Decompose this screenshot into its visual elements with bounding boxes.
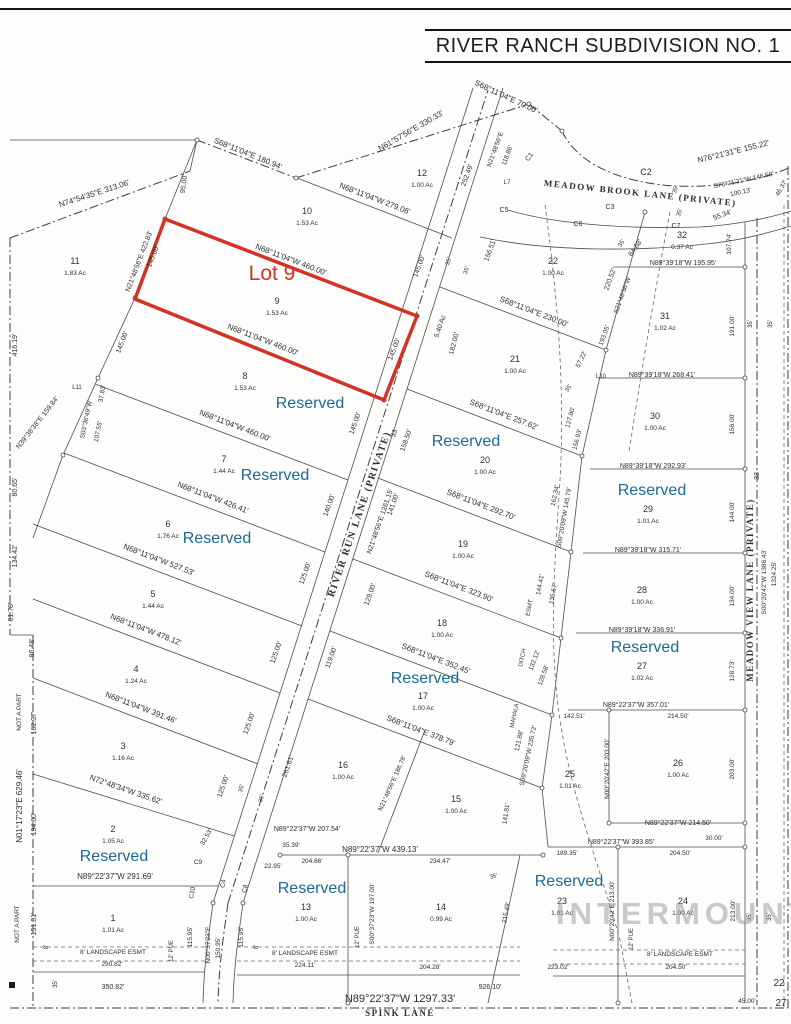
vertex-dot xyxy=(211,901,215,905)
map-label: NOT A PART xyxy=(16,693,23,731)
map-label: 35' xyxy=(676,208,684,217)
map-line xyxy=(378,478,571,552)
map-label: 416.19' xyxy=(12,334,19,357)
map-label: 145.00' xyxy=(412,255,427,279)
monument-marker xyxy=(9,982,15,988)
map-label: N00°20'42"E 203.00' xyxy=(603,739,611,799)
map-label: 1.00 Ac xyxy=(412,705,434,712)
vertex-dot xyxy=(743,821,747,825)
vertex-dot xyxy=(540,786,544,790)
map-label: 35' xyxy=(747,913,753,921)
map-label: 35' xyxy=(463,266,471,275)
vertex-dot xyxy=(743,376,747,380)
map-label: 107.74' xyxy=(726,233,733,254)
vertex-dot xyxy=(743,265,747,269)
map-label: Reserved xyxy=(80,848,148,865)
map-label: 204.66' xyxy=(301,858,322,865)
map-label: N39°38'38"E 159.84' xyxy=(14,395,60,451)
map-label: 1.05 Ac xyxy=(102,838,124,845)
vertex-dot xyxy=(743,708,747,712)
map-label: C6 xyxy=(574,221,583,228)
map-label: C5 xyxy=(500,207,509,214)
map-label: S68°11'04"E 378.79' xyxy=(385,713,456,748)
map-label: C4 xyxy=(219,879,227,889)
map-label: 15 xyxy=(451,794,461,804)
map-label: 1.83 Ac xyxy=(64,270,86,277)
map-label: 1.00 Ac xyxy=(332,774,354,781)
map-label: 35' xyxy=(258,794,266,803)
map-label: 6 xyxy=(165,519,170,529)
map-label: 158.50' xyxy=(400,429,414,453)
map-label: 189.35' xyxy=(556,850,577,857)
map-label: Lot 9 xyxy=(249,262,296,285)
map-label: 10 xyxy=(302,206,312,216)
vertex-dot xyxy=(580,454,584,458)
map-label: 144.41' xyxy=(535,574,546,596)
map-label: C2 xyxy=(640,167,652,177)
map-label: 1.02 Ac xyxy=(654,325,676,332)
map-label: Reserved xyxy=(618,482,686,499)
map-label: 213.00' xyxy=(730,900,737,921)
map-label: 1.00 Ac xyxy=(542,270,564,277)
map-label: 13 xyxy=(301,902,311,912)
map-label: ESMT xyxy=(526,599,535,617)
map-line xyxy=(542,715,552,788)
map-label: 145.00' xyxy=(146,245,161,269)
vertex-dot xyxy=(294,176,298,180)
map-label: 8 xyxy=(242,371,247,381)
vertex-dot xyxy=(61,453,65,457)
map-label: 25 xyxy=(565,769,575,779)
map-label: 1.01 Ac xyxy=(102,927,124,934)
map-label: 33 xyxy=(754,472,761,480)
map-label: 1.00 Ac xyxy=(431,632,453,639)
map-label: 27 xyxy=(775,998,787,1009)
map-label: 140.00' xyxy=(323,494,337,518)
map-label: 156.00' xyxy=(729,413,736,434)
map-label: C10 xyxy=(188,886,197,899)
map-label: N89°39'18"W 315.71' xyxy=(615,546,681,554)
map-label: 35' xyxy=(489,873,498,881)
vertex-dot xyxy=(550,713,554,717)
map-label: 1.24 Ac xyxy=(125,678,147,685)
map-label: 30 xyxy=(650,411,660,421)
map-label: 19 xyxy=(458,539,468,549)
map-path xyxy=(233,903,243,1003)
map-label: 17 xyxy=(418,691,428,701)
map-label: S76°21'31"W 146.50' xyxy=(713,170,775,191)
map-label: 21 xyxy=(510,354,520,364)
map-label: 3 xyxy=(120,741,125,751)
map-label: S68°11'04"E 180.94' xyxy=(213,136,284,172)
map-label: 1.00 Ac xyxy=(504,368,526,375)
map-label: MEADOW VIEW LANE (PRIVATE) xyxy=(745,498,755,681)
map-line xyxy=(353,559,561,638)
map-line xyxy=(582,350,606,456)
map-label: 20 xyxy=(480,455,490,465)
vertex-dot xyxy=(569,550,573,554)
map-label: 1.02 Ac xyxy=(631,675,653,682)
map-line xyxy=(542,788,548,847)
map-line xyxy=(33,599,280,693)
map-label: 95.00' xyxy=(180,174,190,194)
map-label: 8' xyxy=(254,945,260,949)
map-label: 35' xyxy=(618,239,627,249)
map-label: 32 xyxy=(677,230,687,240)
map-label: 29 xyxy=(643,504,653,514)
map-label: 1.01 Ac xyxy=(637,518,659,525)
map-label: 151.01' xyxy=(31,913,38,936)
map-label: 1.44 Ac xyxy=(142,603,164,610)
map-label: 12 xyxy=(417,168,427,178)
map-label: 145.00' xyxy=(115,331,130,355)
map-label: 8' xyxy=(44,945,50,949)
map-label: 1.00 Ac xyxy=(672,910,694,917)
map-label: N89°39'18"W 292.93' xyxy=(620,462,686,470)
map-label: 223.02' xyxy=(547,964,568,971)
vertex-dot xyxy=(643,210,647,214)
map-label: 1.00 Ac xyxy=(644,425,666,432)
map-label: 214.50' xyxy=(667,713,688,720)
map-label: 9 xyxy=(274,296,279,306)
map-label: 204.28' xyxy=(419,964,440,971)
map-label: S68°11'04"E 230.00' xyxy=(498,294,569,329)
map-label: 1.00 Ac xyxy=(295,916,317,923)
map-label: 35' xyxy=(767,913,773,921)
map-label: 115.95' xyxy=(238,927,245,948)
map-label: N61°57'56"E 330.33' xyxy=(377,108,446,153)
map-line xyxy=(561,552,571,638)
map-label: 23 xyxy=(557,896,567,906)
map-label: 128.73' xyxy=(729,660,736,681)
map-label: 290.82' xyxy=(101,961,122,968)
map-label: 162.34' xyxy=(550,485,561,507)
map-label: DITCH xyxy=(518,648,528,667)
vertex-dot xyxy=(560,129,564,133)
map-label: 125.00' xyxy=(217,775,231,799)
map-label: 125.00' xyxy=(243,712,257,736)
map-label: S03°36'49"W xyxy=(78,399,94,439)
map-label: 129.00' xyxy=(364,583,378,607)
map-label: 35' xyxy=(565,384,574,394)
map-label: 0.99 Ac xyxy=(430,916,452,923)
map-label: 162.37' xyxy=(31,712,38,735)
map-label: 12' PUE xyxy=(629,928,635,950)
map-label: 234.47' xyxy=(429,858,450,865)
map-label: 1.76 Ac xyxy=(157,533,179,540)
map-label: 1 xyxy=(110,913,115,923)
map-label: 156.93' xyxy=(571,429,583,451)
map-label: 27 xyxy=(637,661,647,671)
map-label: 193.05' xyxy=(598,324,612,346)
map-label: 26 xyxy=(673,758,683,768)
map-label: 86.48' xyxy=(29,639,36,658)
vertex-dot xyxy=(96,376,100,380)
map-label: 33 xyxy=(390,429,399,439)
map-label: 8' LANDSCAPE ESMT xyxy=(80,949,146,956)
map-label: 141.81' xyxy=(502,803,512,825)
map-label: N68°11'04"W 391.46' xyxy=(104,690,178,726)
map-label: S68°11'04"E 323.90' xyxy=(423,569,494,604)
map-label: 1.53 Ac xyxy=(266,310,288,317)
map-label: 1.00 Ac xyxy=(667,772,689,779)
map-label: 12' PUE xyxy=(355,926,361,948)
map-label: 127.80' xyxy=(564,407,576,429)
map-label: N89°22'37"W 214.50' xyxy=(645,819,711,827)
map-path xyxy=(508,210,791,228)
map-label: 18 xyxy=(437,618,447,628)
map-label: S68°11'04"E 292.70' xyxy=(445,487,516,522)
map-label: 5.40 Ac xyxy=(433,314,447,339)
map-label: 55.34' xyxy=(712,209,732,222)
map-label: 191.00' xyxy=(729,315,736,336)
vertex-dot xyxy=(604,348,608,352)
map-label: 1.01 Ac xyxy=(551,910,573,917)
vertex-dot xyxy=(743,467,747,471)
map-label: C1 xyxy=(524,151,535,162)
map-label: 35' xyxy=(53,980,59,988)
map-label: 100.13' xyxy=(730,187,752,198)
map-label: 150.95' xyxy=(215,937,222,958)
map-label: 1.00 Ac xyxy=(445,808,467,815)
map-label: 350.82' xyxy=(102,984,125,991)
page-title: RIVER RANCH SUBDIVISION NO. 1 xyxy=(425,30,791,62)
map-label: 134.00' xyxy=(729,585,736,606)
map-label: N89°39'18"W 268.41' xyxy=(629,371,695,379)
map-label: N01°17'23"E 629.46' xyxy=(15,769,24,843)
map-label: 121.88' xyxy=(514,730,525,752)
map-label: 128.58' xyxy=(537,664,551,686)
map-line xyxy=(33,678,258,764)
map-label: N89°22'37"W 393.85' xyxy=(588,838,654,846)
map-label: C7 xyxy=(672,223,681,230)
map-label: 134.42' xyxy=(12,545,19,568)
vertex-dot xyxy=(541,853,545,857)
map-label: 35' xyxy=(768,320,774,328)
map-label: Reserved xyxy=(391,670,459,687)
map-label: 261.61' xyxy=(282,755,296,779)
vertex-dot xyxy=(607,821,611,825)
map-label: Reserved xyxy=(241,467,309,484)
map-label: S68°11'04"E 257.62' xyxy=(468,397,539,432)
map-label: C3 xyxy=(606,204,615,211)
vertex-dot xyxy=(241,901,245,905)
map-label: 1.16 Ac xyxy=(112,755,134,762)
map-label: 125.00' xyxy=(270,641,284,665)
map-label: 142.51' xyxy=(563,713,584,720)
map-label: Reserved xyxy=(276,395,344,412)
map-label: 144.00' xyxy=(729,501,736,522)
map-label: 0.37 Ac xyxy=(671,244,693,251)
map-label: 1.00 Ac xyxy=(452,553,474,560)
plat-map: S68°11'04"E 180.94'N61°57'56"E 330.33'S6… xyxy=(0,0,791,1024)
map-label: 1.01 Ac xyxy=(559,783,581,790)
map-label: 132.12' xyxy=(528,649,542,671)
map-label: 32.53' xyxy=(199,828,214,847)
map-label: SPINK LANE xyxy=(365,1008,435,1018)
map-label: 1.00 Ac xyxy=(474,469,496,476)
map-label: 125.00' xyxy=(299,562,313,586)
map-label: 31 xyxy=(660,311,670,321)
plat-sheet: S68°11'04"E 180.94'N61°57'56"E 330.33'S6… xyxy=(0,0,791,1024)
map-label: 57.22' xyxy=(575,350,589,369)
map-label: N89°39'18"W 336.91' xyxy=(609,626,675,634)
map-label: 22 xyxy=(548,256,558,266)
map-label: 203.00' xyxy=(729,758,736,779)
map-label: 7 xyxy=(221,454,226,464)
map-label: N68°11'04"W 460.00' xyxy=(198,408,272,444)
map-label: 1.00 Ac xyxy=(411,182,433,189)
map-label: 194.60' xyxy=(31,813,38,836)
map-label: L10 xyxy=(596,374,607,380)
map-label: L7 xyxy=(504,180,511,186)
map-label: 220.52' xyxy=(603,268,617,292)
map-label: 8' LANDSCAPE ESMT xyxy=(272,950,338,957)
map-label: 11 xyxy=(70,256,79,266)
map-label: 5 xyxy=(150,589,155,599)
map-label: NOT A PART xyxy=(14,905,21,943)
map-label: 204.50' xyxy=(669,850,690,857)
map-label: 24 xyxy=(678,896,688,906)
map-line xyxy=(440,287,606,350)
map-label: 1.44 Ac xyxy=(213,468,235,475)
map-label: 28 xyxy=(637,585,647,595)
map-label: N89°39'18"W 195.95' xyxy=(650,259,716,267)
map-label: 926.10' xyxy=(479,984,502,991)
map-label: 156.51' xyxy=(483,239,497,263)
map-label: 119.00' xyxy=(325,646,339,669)
map-label: 61.78' xyxy=(8,603,15,622)
map-label: S00°37'23"W 197.00' xyxy=(368,883,376,944)
map-label: S21°48'56"W xyxy=(612,275,633,315)
map-label: 35' xyxy=(445,257,453,266)
map-label: 37.83' xyxy=(98,385,108,403)
map-label: N68°11'04"W 426.41' xyxy=(176,480,250,516)
map-label: Reserved xyxy=(183,530,251,547)
map-label: N72°48'34"W 335.62' xyxy=(89,773,164,806)
map-label: N68°11'04"W 279.06' xyxy=(338,181,412,217)
map-label: 2 xyxy=(110,824,115,834)
map-label: 14 xyxy=(436,902,446,912)
vertex-dot xyxy=(195,138,199,142)
map-label: 204.50' xyxy=(665,964,686,971)
map-label: N89°22'37"W 207.54' xyxy=(274,825,340,833)
map-label: 224.11' xyxy=(295,962,316,969)
map-label: C8 xyxy=(241,884,249,894)
vertex-dot xyxy=(743,845,747,849)
map-label: N89°22'37"W 439.13' xyxy=(342,845,418,854)
map-label: Reserved xyxy=(535,873,603,890)
map-label: 45.00' xyxy=(738,998,756,1005)
map-label: N89°22'37"W 291.69' xyxy=(77,872,153,881)
map-line xyxy=(552,638,561,715)
vertex-dot xyxy=(278,853,282,857)
map-label: S68°11'04"E 70.00' xyxy=(473,78,539,115)
map-line xyxy=(571,456,582,552)
map-label: 8' LANDSCAPE ESMT xyxy=(647,951,713,958)
map-label: 1.53 Ac xyxy=(296,220,318,227)
map-label: MAHALA xyxy=(510,703,521,728)
map-label: 35' xyxy=(238,784,246,793)
map-label: Reserved xyxy=(611,639,679,656)
map-label: MEADOW BROOK LANE (PRIVATE) xyxy=(543,178,737,208)
map-label: 46.37' xyxy=(774,179,789,198)
map-label: 135.67' xyxy=(548,583,559,605)
map-label: C9 xyxy=(194,859,203,866)
map-label: N76°21'31"E 155.22' xyxy=(697,138,771,165)
map-label: N89°22'37"W 1297.33' xyxy=(345,993,455,1005)
map-label: N00°20'42"E 213.00' xyxy=(608,881,616,941)
map-label: 215.49' xyxy=(501,902,512,924)
map-line xyxy=(33,774,234,836)
map-label: Reserved xyxy=(432,433,500,450)
map-label: 80.65' xyxy=(12,478,19,497)
map-label: Reserved xyxy=(278,880,346,897)
map-label: 145.00' xyxy=(349,412,363,436)
map-label: 84.68' xyxy=(627,238,644,257)
map-label: N21°48'56"E 186.78' xyxy=(376,754,408,812)
map-label: L11 xyxy=(72,385,82,391)
vertex-dot xyxy=(616,1001,620,1005)
map-label: 1.00 Ac xyxy=(631,599,653,606)
map-label: 16 xyxy=(338,760,348,770)
map-label: N74°54'35"E 313.06' xyxy=(58,178,131,209)
vertex-dot xyxy=(559,636,563,640)
map-line xyxy=(98,298,135,378)
map-label: 12' PUE xyxy=(169,940,175,962)
map-label: 30.00' xyxy=(705,835,723,842)
map-label: 22.95' xyxy=(264,863,282,870)
map-label: S00°20'42"W 1386.43' xyxy=(760,550,768,615)
map-line xyxy=(197,140,296,178)
map-label: 35.39' xyxy=(282,842,300,849)
map-label: 115.95' xyxy=(187,927,194,948)
map-label: N00°37'23"E xyxy=(204,926,212,964)
map-label: 22 xyxy=(773,978,785,989)
map-label: 107.55' xyxy=(93,421,104,443)
map-label: N89°22'37"W 357.01' xyxy=(603,701,669,709)
map-label: 1.53 Ac xyxy=(234,385,256,392)
map-label: 182.00' xyxy=(448,332,461,356)
map-label: 4 xyxy=(133,664,138,674)
map-label: 118.86' xyxy=(501,145,515,167)
map-label: 1324.25' xyxy=(771,562,778,587)
map-label: 35' xyxy=(748,320,754,328)
